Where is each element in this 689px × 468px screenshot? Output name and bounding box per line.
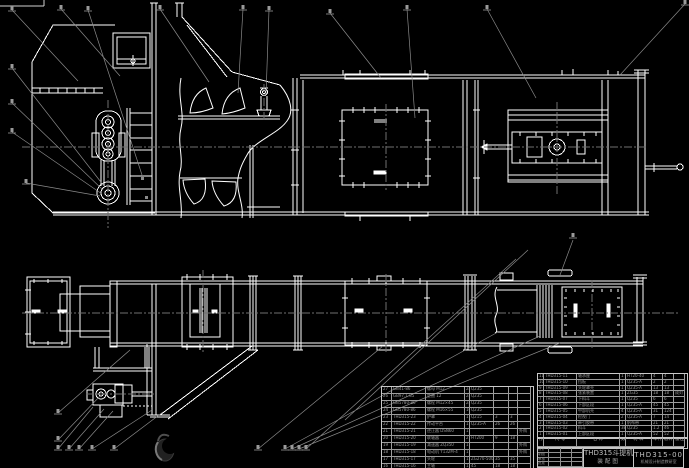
bom-row: 25GB5780-86螺栓 M12×4524Q235 [382,401,533,408]
bom-row: 22THD315-22传动平台1Q235-A2626 [382,422,533,429]
bom-header-cell: 代 号 [544,438,577,447]
crescent-logo [156,435,178,461]
bom-cell: 18 [509,436,518,443]
bom-cell: 20 [382,436,392,443]
elevation-view [32,3,683,221]
bom-cell: 27 [382,387,392,394]
drawing-number: THD315-00 [634,451,683,459]
bom-cell: 垫圈 12 [426,394,465,401]
bom-cell [494,443,509,450]
bom-cell: 21 [382,429,392,436]
bom-cell: THD315-16 [392,464,426,468]
drive-unit [87,347,152,417]
bom-cell: Q235 [470,394,494,401]
bom-header-cell: 名 称 [577,438,620,447]
bom-cell [518,436,531,443]
bom-cell [518,387,531,394]
bom-row: 18THD315-18电动机 Y132M-41外购 [382,450,533,457]
bom-cell: Q235 [470,387,494,394]
drawing-number-cell: THD315-00 机械设计制造教研室 [634,448,683,467]
signature-blank [561,462,572,467]
bom-cell: 传动平台 [426,422,465,429]
bom-cell: 19 [382,443,392,450]
bom-cell [470,450,494,457]
bom-header-cell: 材 料 [626,438,652,447]
bom-header-cell: 总计 [663,438,674,447]
bom-table-standard-parts: 27GB41-86螺母 M1224Q23526GB97.1-85垫圈 1224Q… [381,386,534,468]
signature-grid: 设计制图审核批准 [538,448,584,467]
bom-cell [509,429,518,436]
bom-cell [518,415,531,422]
bom-cell: THD315-22 [392,422,426,429]
bom-cell [494,408,509,415]
bom-cell [494,429,509,436]
bom-row: 21THD315-21逆止器 DSN601外购 [382,429,533,436]
bom-cell: THD315-17 [392,457,426,464]
bom-cell: 18 [382,450,392,457]
bom-cell: 18 [494,464,509,468]
bom-cell: 螺栓 M12×45 [426,401,465,408]
bom-cell: 26 [382,394,392,401]
bom-cell: THD315-18 [392,450,426,457]
bom-cell: 外购 [518,443,531,450]
bom-cell [494,401,509,408]
bom-cell: 18 [509,464,518,468]
bom-cell [509,401,518,408]
bom-cell [518,457,531,464]
bom-cell: 主轴 [426,464,465,468]
bom-cell [509,450,518,457]
signature-blank [572,462,583,467]
signature-row: 批准 [538,462,583,467]
bom-cell [509,387,518,394]
bom-cell [470,443,494,450]
bom-row: 16THD315-16主轴1451818 [382,464,533,468]
bom-cell: 3 [509,415,518,422]
bom-cell: 16 [382,464,392,468]
bom-cell: THD315-21 [392,429,426,436]
bom-cell: THD315-20 [392,436,426,443]
bom-row: 26GB97.1-85垫圈 1224Q235 [382,394,533,401]
bom-cell: 23 [382,415,392,422]
bom-cell: GB97.1-85 [392,394,426,401]
bom-header-cell: 单件 [652,438,663,447]
bom-cell: ZG270-500 [470,457,494,464]
signature-label: 批准 [538,462,549,467]
bom-cell: 17 [382,457,392,464]
bom-row: 17THD315-17头轮1ZG270-5003535 [382,457,533,464]
bom-row: 24GB5780-86螺栓 M16×5516Q235 [382,408,533,415]
bom-cell: GB5780-86 [392,408,426,415]
bom-cell [509,408,518,415]
boot-section [463,69,683,215]
bom-cell: 电动机 Y132M-4 [426,450,465,457]
title-block: 设计制图审核批准 THD315斗提机 装配图 THD315-00 机械设计制造教… [537,447,684,468]
bom-header-cell: 备注 [674,438,685,447]
bom-cell: 35 [494,457,509,464]
bom-cell: THD315-23 [392,415,426,422]
bom-row: 27GB41-86螺母 M1224Q235 [382,387,533,394]
plan-section-a [182,274,233,350]
drawing-type-label: 装配图 [597,457,620,465]
bom-cell: GB5780-86 [392,401,426,408]
bom-cell [494,387,509,394]
plan-boot-section [495,270,647,353]
bom-cell [518,394,531,401]
bom-cell: Q235 [470,401,494,408]
bom-cell [509,394,518,401]
bom-cell [494,394,509,401]
bom-cell [470,429,494,436]
bom-row: 序号代 号名 称数量材 料单件总计备注 [538,438,687,447]
bom-cell: 护罩 [426,415,465,422]
bom-cell [518,422,531,429]
bom-row: 20THD315-20联轴器2HT200918 [382,436,533,443]
bom-cell: 25 [382,401,392,408]
head-casing-outline [32,25,155,213]
bom-row: 19THD315-19减速器 ZQ3501外购 [382,443,533,450]
bom-cell: 联轴器 [426,436,465,443]
bom-cell: 螺母 M12 [426,387,465,394]
bom-cell [518,408,531,415]
bom-cell: 螺栓 M16×55 [426,408,465,415]
bom-cell: 逆止器 DSN60 [426,429,465,436]
bom-cell: 45 [470,464,494,468]
bom-cell [518,464,531,468]
bom-cell: 35 [509,457,518,464]
bom-row: 23THD315-23护罩1Q21533 [382,415,533,422]
product-title: THD315斗提机 [584,450,633,458]
title-cell: THD315斗提机 装配图 [584,448,634,467]
bom-cell: 3 [494,415,509,422]
signature-blank [549,462,560,467]
bom-cell: HT200 [470,436,494,443]
bom-cell: 22 [382,422,392,429]
bom-cell: Q235 [470,408,494,415]
bom-cell: 减速器 ZQ350 [426,443,465,450]
bom-cell: Q235-A [470,422,494,429]
bom-cell: 26 [494,422,509,429]
bom-cell: 外购 [518,450,531,457]
bom-cell [509,443,518,450]
bom-cell: GB41-86 [392,387,426,394]
organization: 机械设计制造教研室 [641,459,677,465]
bom-cell: 26 [509,422,518,429]
inspection-door [339,107,431,188]
bom-cell: THD315-19 [392,443,426,450]
cad-sheet: 27GB41-86螺母 M1224Q23526GB97.1-85垫圈 1224Q… [0,0,689,468]
bom-cell: 外购 [518,429,531,436]
bom-cell: 9 [494,436,509,443]
bom-cell: 24 [382,408,392,415]
bom-cell [494,450,509,457]
bucket-channel-left-curve [179,78,182,218]
head-pulley-stack [92,111,125,186]
bom-table-main-parts: 11THD315-11轴承座1HT20-404410THD315-10挡板1Q2… [537,373,688,439]
corner-frame [0,0,44,6]
bom-cell [518,401,531,408]
bom-cell: Q215 [470,415,494,422]
bom-cell: 头轮 [426,457,465,464]
